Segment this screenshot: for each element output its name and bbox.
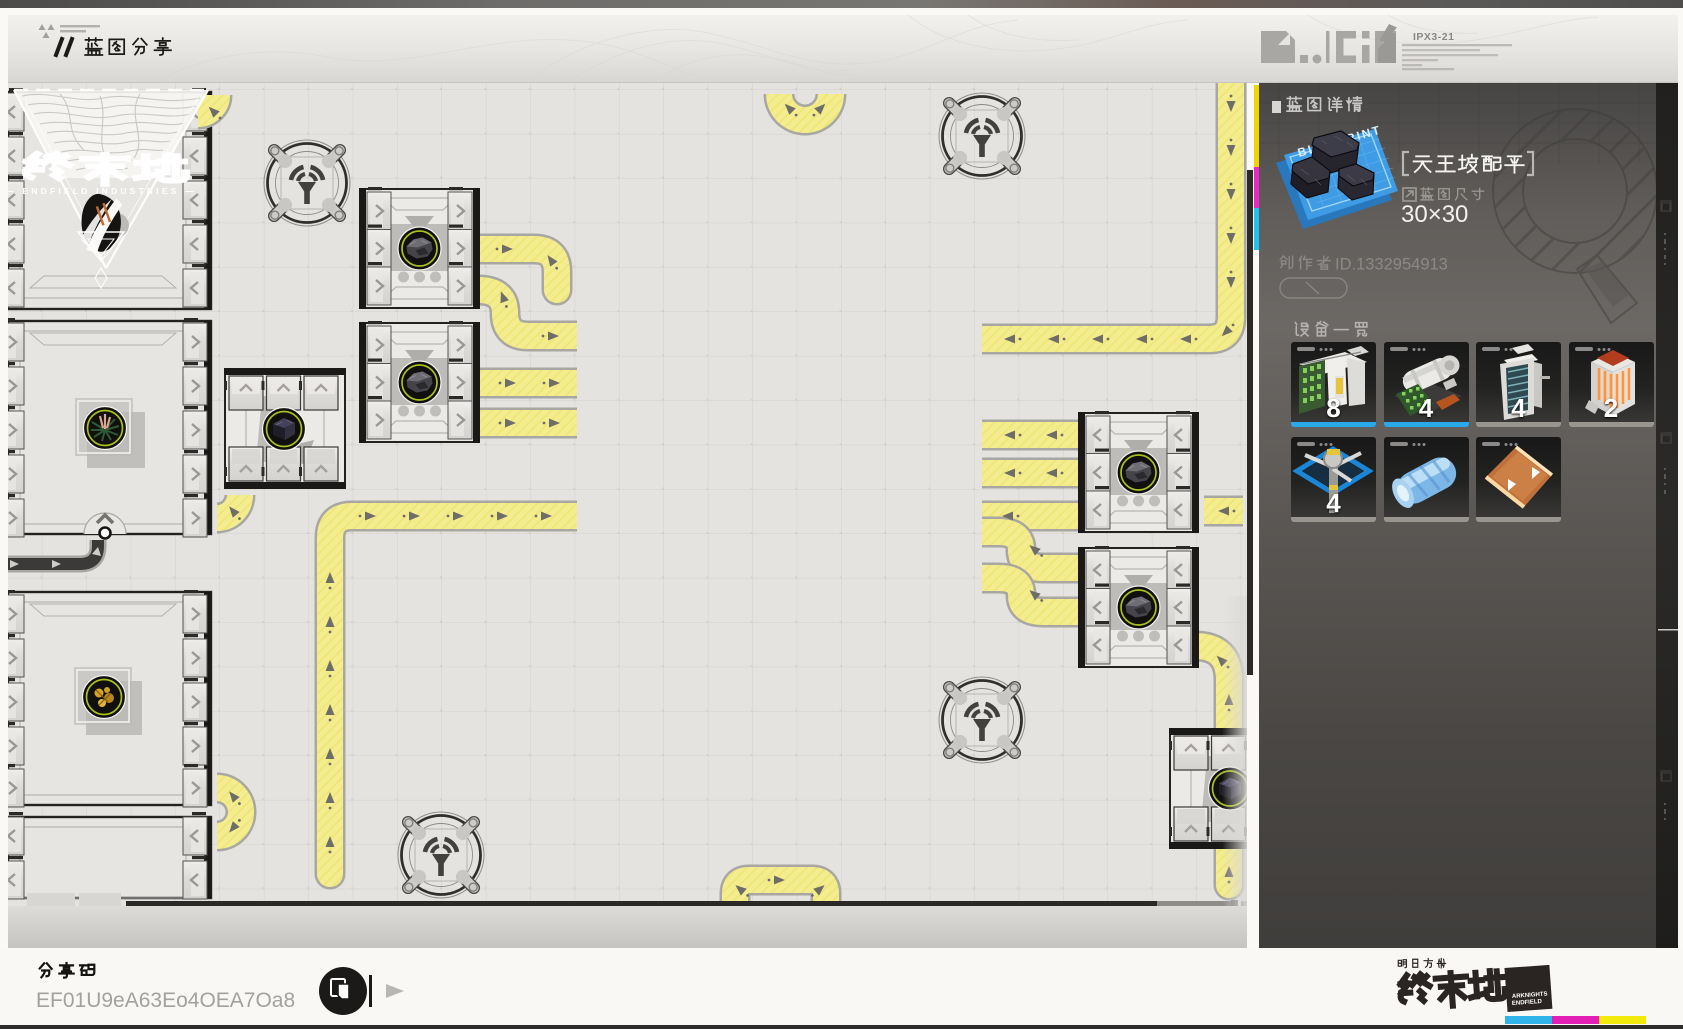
svg-text:30×30: 30×30: [1401, 201, 1468, 228]
svg-text:ID.1332954913: ID.1332954913: [1335, 256, 1448, 274]
svg-text:EF01U9eA63Eo4OEA7Oa8: EF01U9eA63Eo4OEA7Oa8: [36, 989, 295, 1012]
svg-text:IPX3-21: IPX3-21: [1413, 31, 1454, 43]
svg-text:— ENDFIELD INDUSTRIES —: — ENDFIELD INDUSTRIES —: [8, 186, 197, 196]
